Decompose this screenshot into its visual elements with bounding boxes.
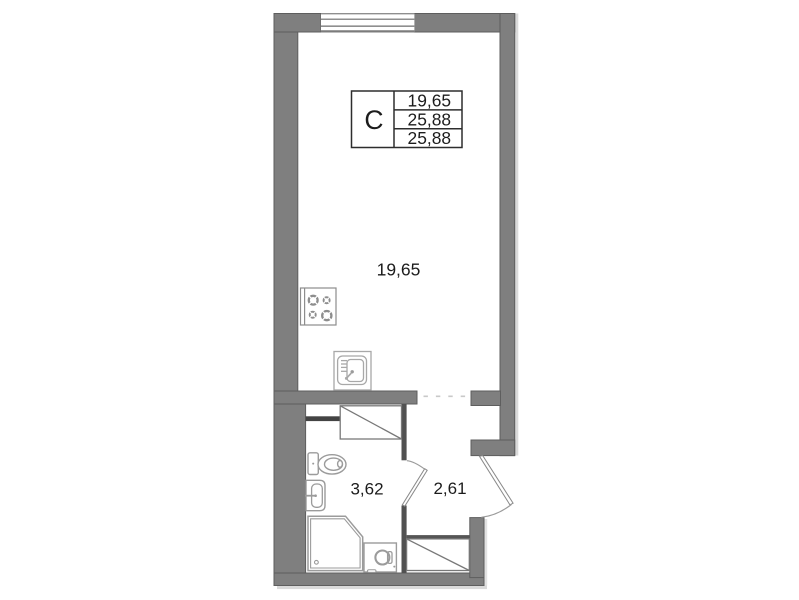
svg-text:19,65: 19,65 <box>408 91 452 111</box>
svg-text:25,88: 25,88 <box>408 110 452 130</box>
svg-text:С: С <box>364 105 383 135</box>
svg-text:19,65: 19,65 <box>377 260 421 280</box>
svg-text:2,61: 2,61 <box>433 479 466 498</box>
svg-text:25,88: 25,88 <box>408 128 452 148</box>
svg-text:3,62: 3,62 <box>350 479 383 498</box>
